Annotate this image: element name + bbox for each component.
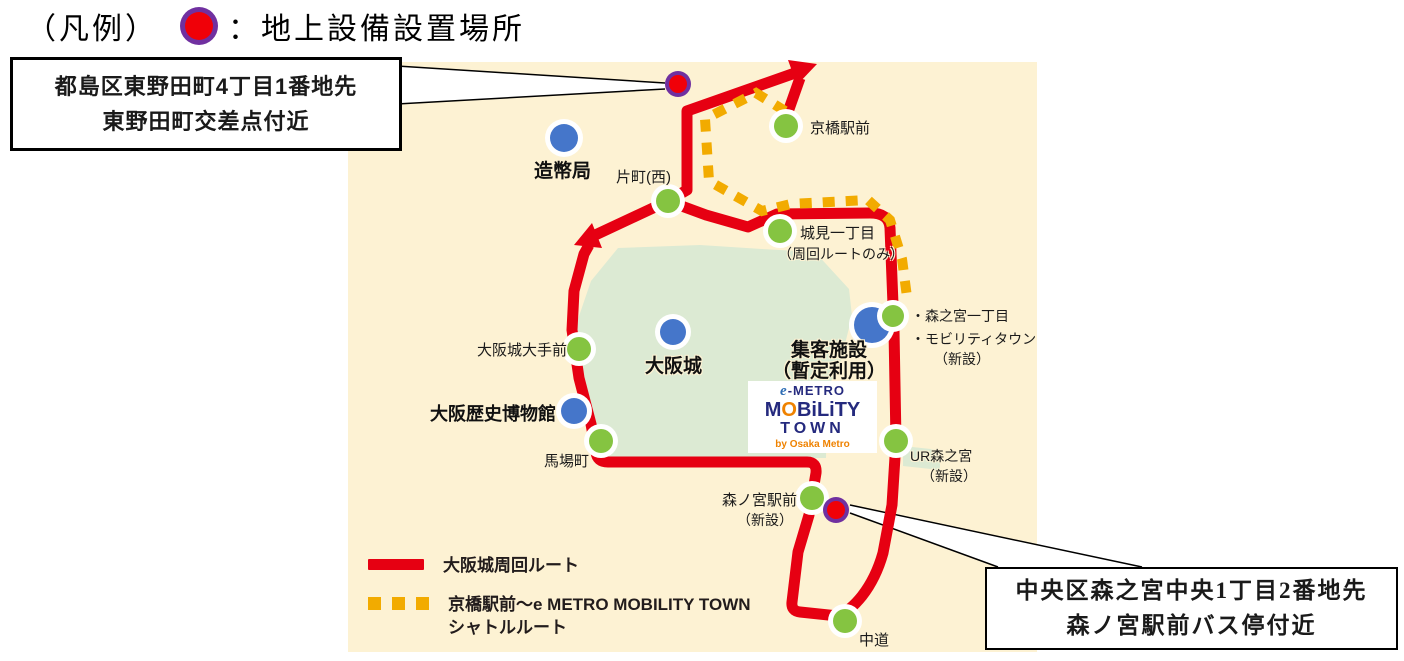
- stop-label-ur-morinomiya: UR森之宮: [910, 446, 972, 466]
- legend-title: （凡例） ： 地上設備設置場所: [26, 4, 525, 48]
- logo-mobility: MOBiLiTY: [765, 400, 861, 421]
- stop-label-morinomiya-ekimae-note: （新設）: [737, 510, 793, 530]
- mint-marker: [550, 124, 578, 152]
- stop-label-kyobashi: 京橋駅前: [810, 117, 870, 138]
- ground-equipment-dot-bottom: [827, 501, 845, 519]
- facility-label-visitor-facility: 集客施設 （暫定利用）: [770, 340, 888, 382]
- stop-label-otemae: 大阪城大手前: [477, 339, 567, 360]
- legend-title-separator: ：: [228, 4, 261, 48]
- stop-label-shiromi: 城見一丁目: [800, 222, 875, 243]
- legend-shuttle-route-label: 京橋駅前～e METRO MOBILITY TOWN シャトルルート: [448, 593, 751, 639]
- facility-label-line: （暫定利用）: [770, 361, 888, 382]
- facility-label-museum: 大阪歴史博物館: [430, 400, 556, 426]
- stop-label-katamachi: 片町(西): [616, 166, 671, 187]
- logo-o-bus-icon: O: [781, 399, 797, 421]
- shuttle-route-swatch: [368, 597, 429, 610]
- e-metro-mobility-town-logo: e-METRO MOBiLiTY TOWN by Osaka Metro: [748, 381, 877, 453]
- legend-shuttle-route: 京橋駅前～e METRO MOBILITY TOWN シャトルルート: [368, 593, 751, 639]
- stop-label-ur-morinomiya-note: （新設）: [921, 466, 977, 486]
- legend-title-prefix: （凡例）: [26, 4, 158, 48]
- callout-line: 森ノ宮駅前バス停付近: [1067, 609, 1317, 644]
- stop-label-morinomiya-ekimae: 森ノ宮駅前: [722, 489, 797, 510]
- legend-shuttle-line1: 京橋駅前～e METRO MOBILITY TOWN: [448, 593, 751, 616]
- facility-label-mint: 造幣局: [534, 156, 591, 183]
- stop-label-mobility-town: ・モビリティタウン: [911, 329, 1036, 349]
- ground-equipment-dot-top: [669, 75, 687, 93]
- legend-title-label: 地上設備設置場所: [261, 4, 525, 48]
- callout-morinomiya: 中央区森之宮中央1丁目2番地先 森ノ宮駅前バス停付近: [985, 567, 1398, 650]
- stop-label-babacho: 馬場町: [544, 450, 589, 471]
- facility-label-osaka-castle: 大阪城: [645, 351, 702, 378]
- legend-loop-route: 大阪城周回ルート: [368, 554, 579, 577]
- loop-route-swatch: [368, 559, 424, 570]
- logo-town: TOWN: [780, 421, 845, 438]
- legend-shuttle-line2: シャトルルート: [448, 616, 751, 639]
- logo-bility: BiLiTY: [797, 399, 860, 421]
- ground-equipment-legend-icon: [180, 7, 218, 45]
- callout-higashinodacho: 都島区東野田町4丁目1番地先 東野田町交差点付近: [10, 57, 402, 151]
- logo-e-mark: e: [780, 383, 788, 399]
- logo-byline: by Osaka Metro: [775, 440, 849, 451]
- stop-label-nakamichi: 中道: [859, 629, 889, 650]
- callout-line: 都島区東野田町4丁目1番地先: [55, 69, 357, 104]
- museum-marker: [561, 398, 587, 424]
- logo-metro-text: -METRO: [788, 383, 845, 398]
- stop-label-morinomiya-itchome: ・森之宮一丁目: [911, 306, 1009, 326]
- stop-label-shiromi-note: （周回ルートのみ）: [778, 244, 904, 264]
- facility-label-line: 集客施設: [770, 340, 888, 361]
- callout-line: 東野田町交差点付近: [102, 104, 309, 139]
- stop-label-mobility-town-note: （新設）: [934, 349, 990, 369]
- route-map-figure: （凡例） ： 地上設備設置場所 都島区東野田町4丁目1番地先 東野田町交差点付近…: [0, 0, 1404, 661]
- legend-loop-route-label: 大阪城周回ルート: [443, 554, 579, 577]
- logo-m: M: [765, 399, 782, 421]
- osaka-castle-marker: [660, 319, 686, 345]
- logo-e-metro: e-METRO: [780, 384, 845, 400]
- callout-line: 中央区森之宮中央1丁目2番地先: [1016, 574, 1368, 609]
